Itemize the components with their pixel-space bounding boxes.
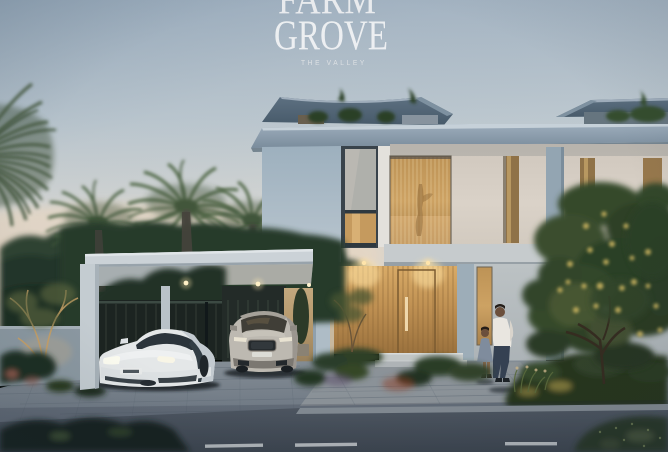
svg-text:GROVE: GROVE: [274, 14, 388, 60]
svg-text:THE VALLEY: THE VALLEY: [301, 58, 367, 67]
